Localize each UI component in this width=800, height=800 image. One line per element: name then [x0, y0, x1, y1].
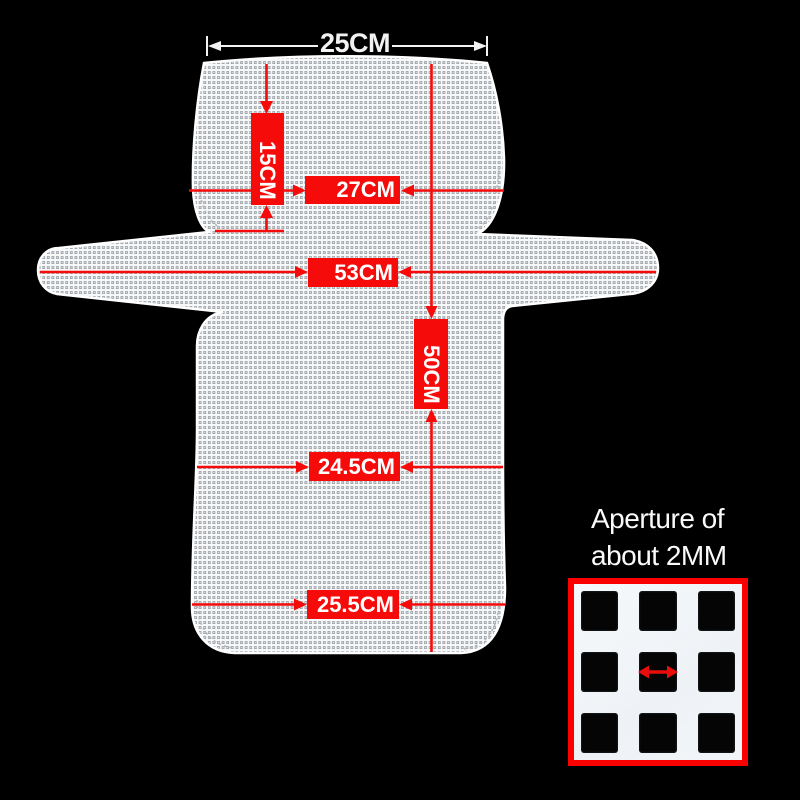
arrowhead-right [667, 666, 678, 679]
mesh-hole [581, 713, 618, 753]
dim-label-wing-span: 53CM [308, 258, 398, 287]
dim-label-headrest-height: 15CM [251, 113, 284, 205]
mesh-hole [639, 591, 676, 631]
aperture-note-line2: about 2MM [591, 537, 727, 574]
mesh-sheet [38, 56, 658, 653]
aperture-arrow-icon [638, 662, 678, 682]
dim-label-seat-bottom-width: 25.5CM [307, 590, 399, 619]
aperture-note: Aperture of about 2MM [591, 500, 727, 574]
aperture-note-line1: Aperture of [591, 500, 727, 537]
arrowhead-left [208, 41, 221, 51]
mesh-hole [639, 713, 676, 753]
mesh-hole [698, 591, 735, 631]
product-photo-canvas: 25CM 15CM 27CM 53CM 50CM 24.5CM 25.5CM A… [0, 0, 800, 800]
mesh-hole [581, 652, 618, 692]
mesh-hole [698, 652, 735, 692]
dim-label-seat-mid-width: 24.5CM [309, 452, 400, 481]
dim-label-headrest-width: 27CM [305, 176, 400, 204]
dim-label-top-width: 25CM [316, 26, 394, 60]
dim-label-overall-height: 50CM [414, 319, 448, 409]
mesh-hole [581, 591, 618, 631]
arrowhead-right [474, 41, 487, 51]
mesh-hole [698, 713, 735, 753]
arrowhead-left [638, 666, 649, 679]
